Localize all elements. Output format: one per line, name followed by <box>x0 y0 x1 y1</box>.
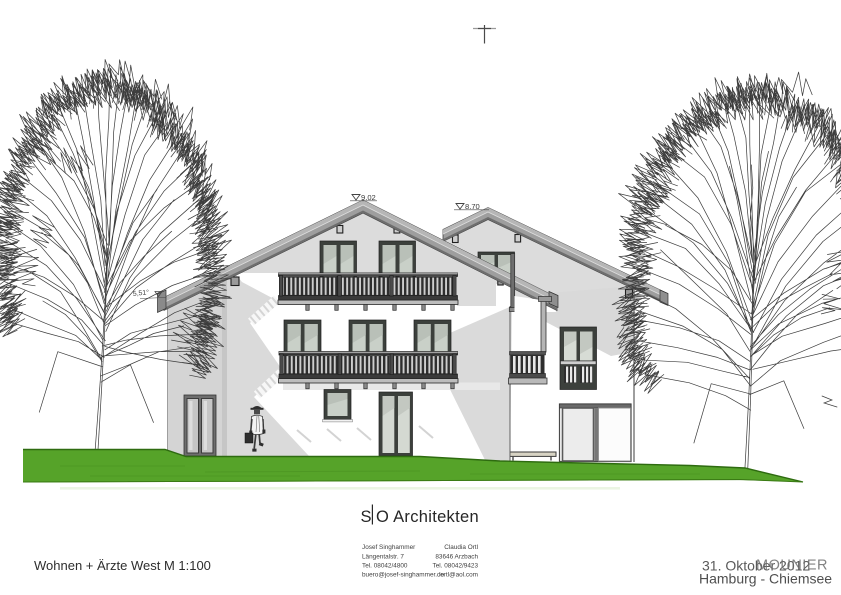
svg-text:Tel. 08042/4800: Tel. 08042/4800 <box>362 563 408 570</box>
svg-text:Hamburg - Chiemsee: Hamburg - Chiemsee <box>699 571 832 587</box>
svg-text:83646 Arzbach: 83646 Arzbach <box>435 554 478 561</box>
svg-text:Wohnen + Ärzte West M 1:100: Wohnen + Ärzte West M 1:100 <box>34 558 211 573</box>
svg-text:buero@josef-singhammer.de: buero@josef-singhammer.de <box>362 572 445 579</box>
svg-text:Josef Singhammer: Josef Singhammer <box>362 544 416 551</box>
svg-text:S: S <box>361 508 372 526</box>
svg-text:Längentalstr. 7: Längentalstr. 7 <box>362 554 404 561</box>
svg-text:O Architekten: O Architekten <box>376 508 479 526</box>
svg-text:ortl@aol.com: ortl@aol.com <box>440 572 478 579</box>
svg-text:Tel. 08042/9423: Tel. 08042/9423 <box>433 563 479 570</box>
svg-text:Claudia Ortl: Claudia Ortl <box>444 544 478 551</box>
